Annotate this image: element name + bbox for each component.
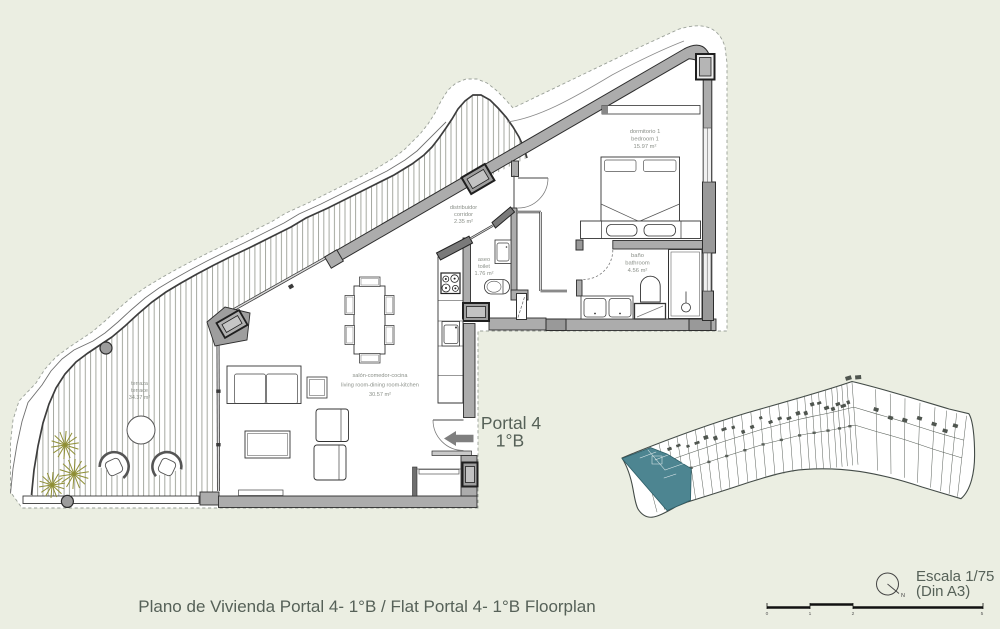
- svg-text:terraza: terraza: [131, 381, 148, 387]
- svg-text:0: 0: [766, 611, 769, 617]
- svg-text:corridor: corridor: [454, 212, 473, 218]
- svg-text:terrace: terrace: [131, 388, 148, 394]
- svg-text:toilet: toilet: [478, 264, 490, 270]
- svg-text:bedroom 1: bedroom 1: [631, 136, 659, 142]
- svg-text:baño: baño: [631, 253, 644, 259]
- svg-text:15.97 m²: 15.97 m²: [634, 144, 657, 150]
- svg-text:30.57 m²: 30.57 m²: [369, 392, 391, 398]
- svg-text:1: 1: [809, 611, 812, 617]
- svg-text:N: N: [901, 593, 905, 599]
- svg-text:living room-dining room-kitche: living room-dining room-kitchen: [341, 382, 419, 388]
- svg-text:Plano de Vivienda Portal 4- 1°: Plano de Vivienda Portal 4- 1°B / Flat P…: [138, 597, 595, 616]
- svg-text:2: 2: [852, 611, 855, 617]
- svg-text:1°B: 1°B: [496, 431, 524, 451]
- svg-text:5: 5: [981, 611, 984, 617]
- svg-text:aseo: aseo: [478, 257, 490, 263]
- svg-text:4.56 m²: 4.56 m²: [628, 268, 648, 274]
- svg-text:dormitorio 1: dormitorio 1: [630, 129, 661, 135]
- svg-text:(Din A3): (Din A3): [916, 583, 970, 600]
- svg-text:salón-comedor-cocina: salón-comedor-cocina: [352, 373, 408, 379]
- svg-text:distribuidor: distribuidor: [450, 205, 477, 211]
- svg-text:1.76 m²: 1.76 m²: [475, 271, 494, 277]
- svg-text:bathroom: bathroom: [625, 260, 650, 266]
- svg-text:34.37 m²: 34.37 m²: [129, 395, 150, 401]
- svg-text:2.35 m²: 2.35 m²: [454, 219, 473, 225]
